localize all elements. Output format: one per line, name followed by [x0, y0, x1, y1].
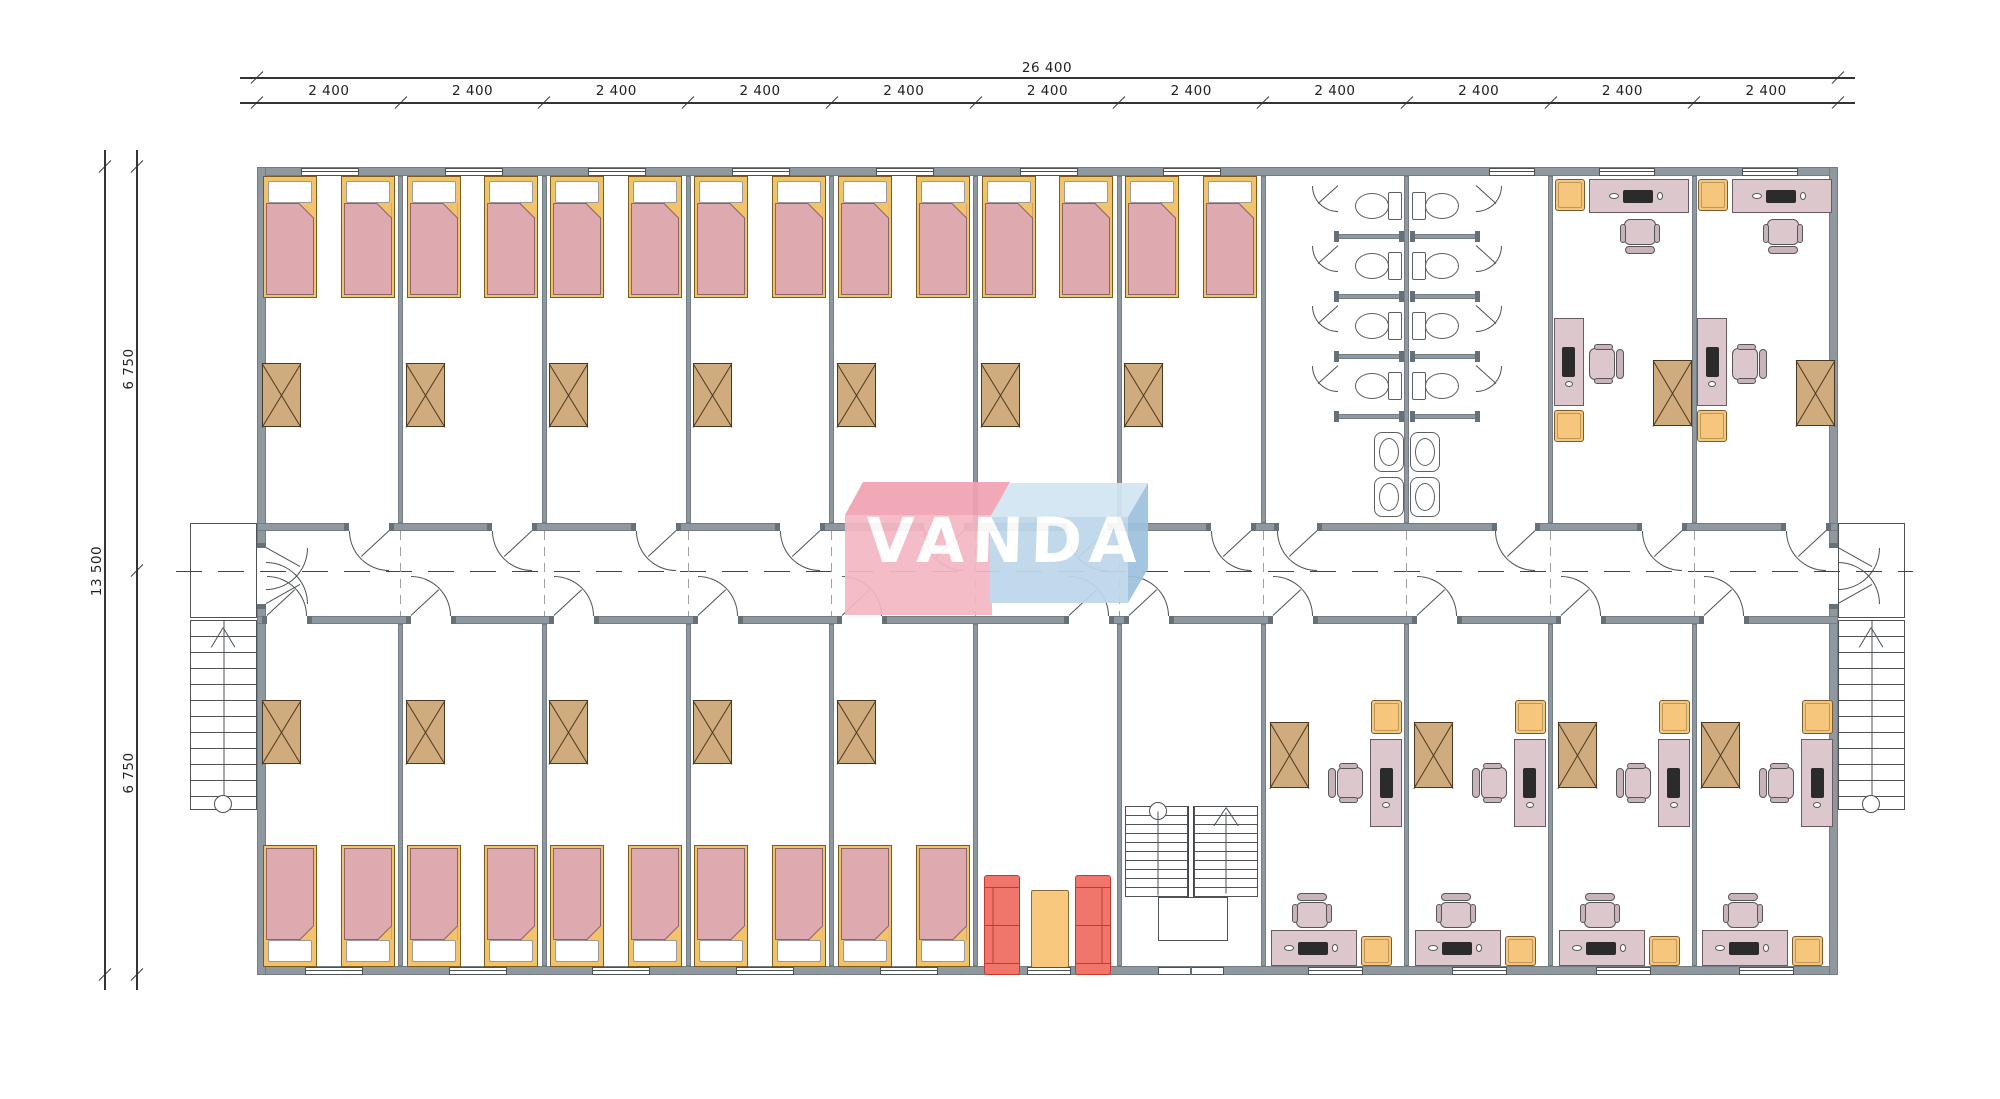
top-bedroom-6-bed-1-pillow	[987, 181, 1031, 203]
door-jamb	[1682, 523, 1687, 531]
top-office-1-cabinet-1-door-edge	[1558, 182, 1582, 208]
bottom-office-4-chair-1	[1759, 765, 1797, 801]
bottom-office-1-chair-1-arm-left	[1339, 797, 1358, 803]
sink-basin	[1415, 483, 1435, 511]
door-jamb	[1412, 616, 1417, 624]
bottom-office-2-chair-2	[1438, 893, 1474, 931]
door-jamb	[1251, 523, 1256, 531]
door-jamb	[1317, 523, 1322, 531]
top-office-2-chair-1-seat	[1767, 219, 1799, 245]
top-office-1-chair-2-seat	[1589, 348, 1615, 380]
door-swing-arc	[554, 576, 594, 616]
door-jamb	[1781, 523, 1786, 531]
toilet-tank	[1388, 192, 1402, 220]
lounge-window-glass-line	[1027, 970, 1071, 971]
lounge-sofa-1-cushion-mid	[984, 925, 1020, 926]
door-swing-arc	[698, 576, 738, 616]
door-jamb	[1535, 523, 1540, 531]
toilet-bowl	[1425, 313, 1459, 339]
wall-cap	[1334, 291, 1339, 302]
top-bedroom-7-bed-1-blanket	[1128, 203, 1176, 295]
bottom-office-2-desk-1-mouse	[1526, 802, 1534, 808]
bottom-office-4-chair-2	[1725, 893, 1761, 931]
top-bedroom-1-bed-1-blanket	[266, 203, 314, 295]
bottom-office-2-chair-2-seat	[1440, 902, 1472, 928]
door-swing-arc	[780, 531, 820, 571]
top-office-1-desk-1-plate	[1609, 193, 1619, 199]
toilet-stall-door-arc	[1476, 306, 1502, 332]
top-bedroom-4-bed-2-blanket	[775, 203, 823, 295]
door-jamb	[549, 616, 554, 624]
wall-partition-bottom	[1692, 624, 1697, 966]
wall-partition-top	[398, 176, 403, 523]
door-jamb	[1492, 523, 1497, 531]
door-jamb	[406, 616, 411, 624]
top-office-1-window-glass-line	[1599, 171, 1655, 172]
dim-segment-label: 2 400	[1314, 83, 1355, 99]
toilet-bowl	[1425, 253, 1459, 279]
toilet-stall-partition	[1338, 354, 1404, 359]
dim-line-horizontal-total	[240, 77, 1855, 78]
bottom-office-2-chair-1	[1472, 765, 1510, 801]
top-bedroom-5-bed-1-pillow	[843, 181, 887, 203]
wall-cap	[1475, 231, 1480, 242]
door-jamb	[775, 523, 780, 531]
bottom-bedroom-4-bed-1-pillow	[699, 940, 743, 962]
bottom-office-3-desk-2-mouse	[1620, 944, 1626, 952]
stair-left-start-circle	[214, 795, 232, 813]
door-opening	[1561, 615, 1601, 625]
bottom-office-3-cabinet-1-door-edge	[1662, 703, 1687, 731]
door-jamb	[344, 523, 349, 531]
toilet-stall-partition	[1410, 414, 1476, 419]
door-jamb	[631, 523, 636, 531]
lounge-sofa-2-armrest-top	[1075, 887, 1111, 888]
top-bedroom-5-bed-2-blanket	[919, 203, 967, 295]
top-bedroom-2-window-glass-line	[445, 171, 503, 172]
door-swing-arc	[1495, 531, 1535, 571]
bottom-bedroom-3-window-glass-line	[592, 970, 650, 971]
bottom-office-3-desk-1-computer	[1667, 768, 1680, 798]
top-office-1-chair-2-arm-right	[1594, 378, 1613, 384]
bottom-office-3-chair-2-arm-right	[1614, 904, 1620, 923]
bottom-bedroom-1-bed-1-pillow	[268, 940, 312, 962]
top-bedroom-4-bed-2-pillow	[777, 181, 821, 203]
door-jamb	[1826, 523, 1831, 531]
bottom-office-4-chair-1-back	[1759, 768, 1767, 798]
top-bedroom-4-bed-1-pillow	[699, 181, 743, 203]
wall-cap	[1410, 291, 1415, 302]
top-bedroom-5-bed-1-blanket	[841, 203, 889, 295]
top-bedroom-3-bed-2-pillow	[633, 181, 677, 203]
bottom-bedroom-1-bed-2-blanket	[344, 848, 392, 940]
bottom-office-2-chair-1-back	[1472, 768, 1480, 798]
dim-segment-label: 2 400	[883, 83, 924, 99]
bottom-office-1-window-glass-line	[1308, 970, 1363, 971]
toilet-stall-partition	[1338, 294, 1404, 299]
floor-plan: 26 400 13 500 VANDA 2 4002 4002 4002 400…	[0, 0, 2000, 1099]
bottom-bedroom-4-bed-2-blanket	[775, 848, 823, 940]
bottom-office-4-desk-1-computer	[1811, 768, 1824, 798]
door-jamb	[1274, 523, 1279, 531]
top-bedroom-1-window-glass-line	[301, 171, 359, 172]
toilet-room-window-glass-line	[1489, 171, 1535, 172]
top-office-2-window-glass-line	[1742, 171, 1798, 172]
corridor-column-dash	[544, 531, 545, 616]
bottom-office-2-chair-1-arm-right	[1483, 763, 1502, 769]
top-office-2-chair-1	[1765, 216, 1801, 254]
top-bedroom-5-bed-2-pillow	[921, 181, 965, 203]
top-office-2-chair-1-back	[1768, 246, 1798, 254]
wall-cap	[1475, 291, 1480, 302]
bottom-office-1-cabinet-2-door-edge	[1364, 939, 1389, 963]
door-swing-arc	[1277, 531, 1317, 571]
bottom-office-1-chair-1	[1328, 765, 1366, 801]
wall-cap	[1475, 351, 1480, 362]
bottom-bedroom-4-bed-1-blanket	[697, 848, 745, 940]
wall-partition-bottom	[1404, 624, 1409, 966]
toilet-stall-door-arc	[1312, 306, 1338, 332]
bottom-office-3-chair-2	[1582, 893, 1618, 931]
wall-partition-top	[1692, 176, 1697, 523]
toilet-stall-door-arc	[1312, 366, 1338, 392]
top-office-1-chair-2-arm-left	[1594, 344, 1613, 350]
bottom-office-3-chair-2-arm-left	[1580, 904, 1586, 923]
top-bedroom-4-bed-1-blanket	[697, 203, 745, 295]
toilet-stall-door-arc	[1476, 366, 1502, 392]
door-jamb	[693, 616, 698, 624]
top-office-2-chair-2	[1729, 346, 1767, 382]
wall-cap	[1399, 291, 1404, 302]
toilet-stall-door-arc	[1312, 186, 1338, 212]
top-bedroom-7-bed-2-pillow	[1208, 181, 1252, 203]
bottom-office-3-desk-2-computer	[1586, 942, 1616, 955]
wall-partition-top	[1261, 176, 1266, 523]
dim-segment-label: 2 400	[1171, 83, 1212, 99]
bottom-bedroom-2-bed-1-pillow	[412, 940, 456, 962]
bottom-office-1-chair-1-back	[1328, 768, 1336, 798]
door-swing-arc	[1642, 531, 1682, 571]
wall-partition-top	[1548, 176, 1553, 523]
top-bedroom-2-bed-2-blanket	[487, 203, 535, 295]
door-jamb	[1206, 523, 1211, 531]
stair-internal-rail	[1188, 806, 1194, 901]
wall-cap	[1475, 411, 1480, 422]
top-office-1-desk-2-mouse	[1565, 381, 1573, 387]
wall-cap	[1399, 231, 1404, 242]
bottom-office-4-window-glass-line	[1739, 970, 1794, 971]
wall-cap	[1410, 411, 1415, 422]
door-opening	[1704, 615, 1744, 625]
toilet-tank	[1388, 312, 1402, 340]
wall-partition-top	[829, 176, 834, 523]
door-jamb	[257, 604, 266, 609]
bottom-office-2-cabinet-2-door-edge	[1508, 939, 1533, 963]
corridor-column-dash	[400, 531, 401, 616]
toilet-bowl	[1355, 313, 1389, 339]
bottom-office-3-chair-2-back	[1585, 893, 1615, 901]
top-office-1-chair-2	[1586, 346, 1624, 382]
bottom-bedroom-1-bed-1-blanket	[266, 848, 314, 940]
bottom-office-4-chair-2-back	[1728, 893, 1758, 901]
door-jamb	[1699, 616, 1704, 624]
bottom-office-4-chair-1-arm-right	[1770, 763, 1789, 769]
top-bedroom-7-bed-1-pillow	[1130, 181, 1174, 203]
door-jamb	[307, 616, 312, 624]
door-jamb	[1744, 616, 1749, 624]
top-office-1-chair-1-arm-left	[1654, 224, 1660, 243]
corridor-column-dash	[1694, 531, 1695, 616]
bottom-bedroom-3-bed-2-pillow	[633, 940, 677, 962]
bottom-office-2-chair-2-arm-right	[1470, 904, 1476, 923]
toilet-bowl	[1425, 193, 1459, 219]
toilet-stall-partition	[1410, 294, 1476, 299]
entry-door-jamb	[1190, 966, 1192, 975]
top-office-1-chair-1	[1622, 216, 1658, 254]
bottom-office-4-cabinet-2-door-edge	[1795, 939, 1820, 963]
bottom-office-2-desk-1-computer	[1523, 768, 1536, 798]
wall-partition-top	[1404, 176, 1409, 523]
door-jamb	[1601, 616, 1606, 624]
bottom-office-1-cabinet-1-door-edge	[1374, 703, 1399, 731]
wall-partition-bottom	[1117, 624, 1122, 966]
bottom-office-3-chair-1-arm-right	[1627, 763, 1646, 769]
top-bedroom-1-bed-2-pillow	[346, 181, 390, 203]
bottom-bedroom-3-bed-1-pillow	[555, 940, 599, 962]
wall-partition-bottom	[829, 624, 834, 966]
wall-partition-bottom	[973, 624, 978, 966]
top-office-2-desk-1-computer	[1766, 190, 1796, 203]
bottom-office-2-cabinet-1-door-edge	[1518, 703, 1543, 731]
top-office-1-cabinet-2-door-edge	[1557, 413, 1581, 439]
bottom-office-1-chair-2-seat	[1296, 902, 1328, 928]
dim-segment-label: 2 400	[1458, 83, 1499, 99]
bottom-office-2-window-glass-line	[1452, 970, 1507, 971]
door-opening	[411, 615, 451, 625]
bottom-office-4-cabinet-1-door-edge	[1805, 703, 1830, 731]
door-jamb	[389, 523, 394, 531]
wall-cap	[1399, 351, 1404, 362]
bottom-bedroom-2-bed-2-pillow	[489, 940, 533, 962]
bottom-bedroom-3-bed-1-blanket	[553, 848, 601, 940]
corridor-column-dash	[831, 531, 832, 616]
toilet-stall-partition	[1410, 354, 1476, 359]
stair-right-flight-stringer	[1871, 620, 1872, 810]
toilet-stall-door-arc	[1312, 246, 1338, 272]
door-swing-arc	[411, 576, 451, 616]
toilet-tank	[1412, 252, 1426, 280]
bottom-office-1-chair-2-arm-left	[1292, 904, 1298, 923]
lounge-sofa-2-armrest-bottom	[1075, 963, 1111, 964]
door-swing-arc	[1273, 576, 1313, 616]
door-opening	[698, 615, 738, 625]
dim-line-vertical-total	[104, 150, 105, 990]
bottom-office-2-chair-1-seat	[1481, 767, 1507, 799]
bottom-office-4-chair-2-arm-right	[1757, 904, 1763, 923]
bottom-office-2-desk-2-mouse	[1476, 944, 1482, 952]
top-bedroom-3-bed-1-blanket	[553, 203, 601, 295]
bottom-bedroom-4-bed-2-pillow	[777, 940, 821, 962]
toilet-stall-door-arc	[1476, 186, 1502, 212]
wall-cap	[1410, 351, 1415, 362]
bottom-bedroom-4-window-glass-line	[736, 970, 794, 971]
door-swing-arc	[1211, 531, 1251, 571]
door-jamb	[676, 523, 681, 531]
top-bedroom-2-bed-1-blanket	[410, 203, 458, 295]
lounge-sofa-1-armrest-bottom	[984, 963, 1020, 964]
corridor-column-dash	[1406, 531, 1407, 616]
top-bedroom-7-window-glass-line	[1163, 171, 1221, 172]
wall-partition-bottom	[686, 624, 691, 966]
top-office-1-chair-1-back	[1625, 246, 1655, 254]
door-swing-arc	[1786, 531, 1826, 571]
bottom-office-3-desk-1-mouse	[1670, 802, 1678, 808]
top-bedroom-1-bed-2-blanket	[344, 203, 392, 295]
bottom-office-1-desk-2-computer	[1298, 942, 1328, 955]
dim-segment-label: 2 400	[1602, 83, 1643, 99]
dim-segment-label: 2 400	[1746, 83, 1787, 99]
bottom-bedroom-5-bed-2-pillow	[921, 940, 965, 962]
door-jamb	[1313, 616, 1318, 624]
bottom-bedroom-2-bed-1-blanket	[410, 848, 458, 940]
door-opening	[1417, 615, 1457, 625]
toilet-bowl	[1355, 253, 1389, 279]
lounge-sofa-1-backrest	[992, 887, 993, 963]
wall-partition-bottom	[1261, 624, 1266, 966]
door-jamb	[1637, 523, 1642, 531]
bottom-office-2-chair-2-arm-left	[1436, 904, 1442, 923]
toilet-tank	[1388, 252, 1402, 280]
top-office-1-chair-1-arm-right	[1620, 224, 1626, 243]
toilet-stall-partition	[1338, 234, 1404, 239]
wall-partition-top	[686, 176, 691, 523]
bottom-bedroom-5-bed-1-pillow	[843, 940, 887, 962]
top-bedroom-3-window-glass-line	[588, 171, 646, 172]
bottom-bedroom-5-bed-2-blanket	[919, 848, 967, 940]
vanda-logo: VANDA	[840, 470, 1150, 620]
top-bedroom-3-bed-2-blanket	[631, 203, 679, 295]
wall-cap	[1334, 351, 1339, 362]
top-office-2-cabinet-1-door-edge	[1701, 182, 1725, 208]
wall-cap	[1334, 411, 1339, 422]
top-office-2-chair-1-arm-right	[1763, 224, 1769, 243]
stair-right-start-circle	[1862, 795, 1880, 813]
door-opening	[554, 615, 594, 625]
dim-segment-label: 2 400	[452, 83, 493, 99]
top-bedroom-1-bed-1-pillow	[268, 181, 312, 203]
toilet-bowl	[1355, 373, 1389, 399]
wall-partition-bottom	[1548, 624, 1553, 966]
door-opening	[257, 548, 266, 604]
top-office-2-desk-2-computer	[1706, 347, 1719, 377]
door-opening	[1829, 548, 1838, 604]
top-office-1-chair-2-back	[1616, 349, 1624, 379]
bottom-office-1-desk-1-computer	[1380, 768, 1393, 798]
bottom-office-1-chair-2-arm-right	[1326, 904, 1332, 923]
dim-vertical-segment-label: 6 750	[121, 752, 137, 793]
top-office-2-chair-2-back	[1759, 349, 1767, 379]
bottom-bedroom-5-window-glass-line	[880, 970, 938, 971]
bottom-office-4-chair-2-arm-left	[1723, 904, 1729, 923]
bottom-office-3-cabinet-2-door-edge	[1652, 939, 1677, 963]
sink-basin	[1379, 483, 1399, 511]
bottom-office-3-desk-2-plate	[1572, 945, 1582, 951]
bottom-office-3-chair-1-back	[1616, 768, 1624, 798]
toilet-tank	[1412, 372, 1426, 400]
stair-internal-landing	[1158, 897, 1228, 941]
door-jamb	[1457, 616, 1462, 624]
wall-cap	[1410, 231, 1415, 242]
door-jamb	[1268, 616, 1273, 624]
bottom-bedroom-3-bed-2-blanket	[631, 848, 679, 940]
dim-total-width-label: 26 400	[1022, 60, 1072, 76]
bottom-office-2-desk-2-plate	[1428, 945, 1438, 951]
lounge-sofa-2-cushion-mid	[1075, 925, 1111, 926]
top-office-1-desk-1-mouse	[1657, 192, 1663, 200]
bottom-office-4-chair-2-seat	[1727, 902, 1759, 928]
stair-left-flight-stringer	[223, 620, 224, 810]
door-swing-arc	[492, 531, 532, 571]
dim-segment-label: 2 400	[596, 83, 637, 99]
vanda-logo-text: VANDA	[865, 510, 1145, 572]
wall-cap	[1334, 231, 1339, 242]
top-bedroom-6-bed-2-pillow	[1064, 181, 1108, 203]
dim-line-horizontal-segments	[240, 102, 1855, 103]
bottom-bedroom-2-window-glass-line	[449, 970, 507, 971]
toilet-tank	[1412, 192, 1426, 220]
door-opening	[1273, 615, 1313, 625]
dim-segment-label: 2 400	[308, 83, 349, 99]
door-jamb	[487, 523, 492, 531]
bottom-office-2-chair-1-arm-left	[1483, 797, 1502, 803]
top-office-2-chair-2-arm-right	[1737, 378, 1756, 384]
top-bedroom-7-bed-2-blanket	[1206, 203, 1254, 295]
bottom-bedroom-1-bed-2-pillow	[346, 940, 390, 962]
door-swing-arc	[1561, 576, 1601, 616]
bottom-office-2-desk-2-computer	[1442, 942, 1472, 955]
top-bedroom-2-bed-2-pillow	[489, 181, 533, 203]
top-office-2-chair-2-seat	[1732, 348, 1758, 380]
door-swing-arc	[1704, 576, 1744, 616]
top-bedroom-2-bed-1-pillow	[412, 181, 456, 203]
door-swing-arc	[1417, 576, 1457, 616]
top-bedroom-4-window-glass-line	[732, 171, 790, 172]
bottom-office-4-chair-1-seat	[1768, 767, 1794, 799]
top-bedroom-3-bed-1-pillow	[555, 181, 599, 203]
bottom-bedroom-1-window-glass-line	[305, 970, 363, 971]
bottom-office-2-chair-2-back	[1441, 893, 1471, 901]
toilet-tank	[1388, 372, 1402, 400]
door-jamb	[262, 616, 267, 624]
top-bedroom-6-bed-2-blanket	[1062, 203, 1110, 295]
door-jamb	[1556, 616, 1561, 624]
bottom-office-3-chair-1	[1616, 765, 1654, 801]
dim-vertical-segment-label: 6 750	[121, 348, 137, 389]
top-office-1-desk-2-computer	[1562, 347, 1575, 377]
lounge-sofa-1-armrest-top	[984, 887, 1020, 888]
top-office-1-desk-1-computer	[1623, 190, 1653, 203]
toilet-stall-door-arc	[1476, 246, 1502, 272]
top-office-2-chair-2-arm-left	[1737, 344, 1756, 350]
sink-basin	[1379, 438, 1399, 466]
top-bedroom-6-window-glass-line	[1020, 171, 1078, 172]
toilet-bowl	[1355, 193, 1389, 219]
toilet-tank	[1412, 312, 1426, 340]
top-bedroom-6-bed-1-blanket	[985, 203, 1033, 295]
wall-partition-bottom	[398, 624, 403, 966]
wall-partition-bottom	[542, 624, 547, 966]
door-opening	[267, 615, 307, 625]
